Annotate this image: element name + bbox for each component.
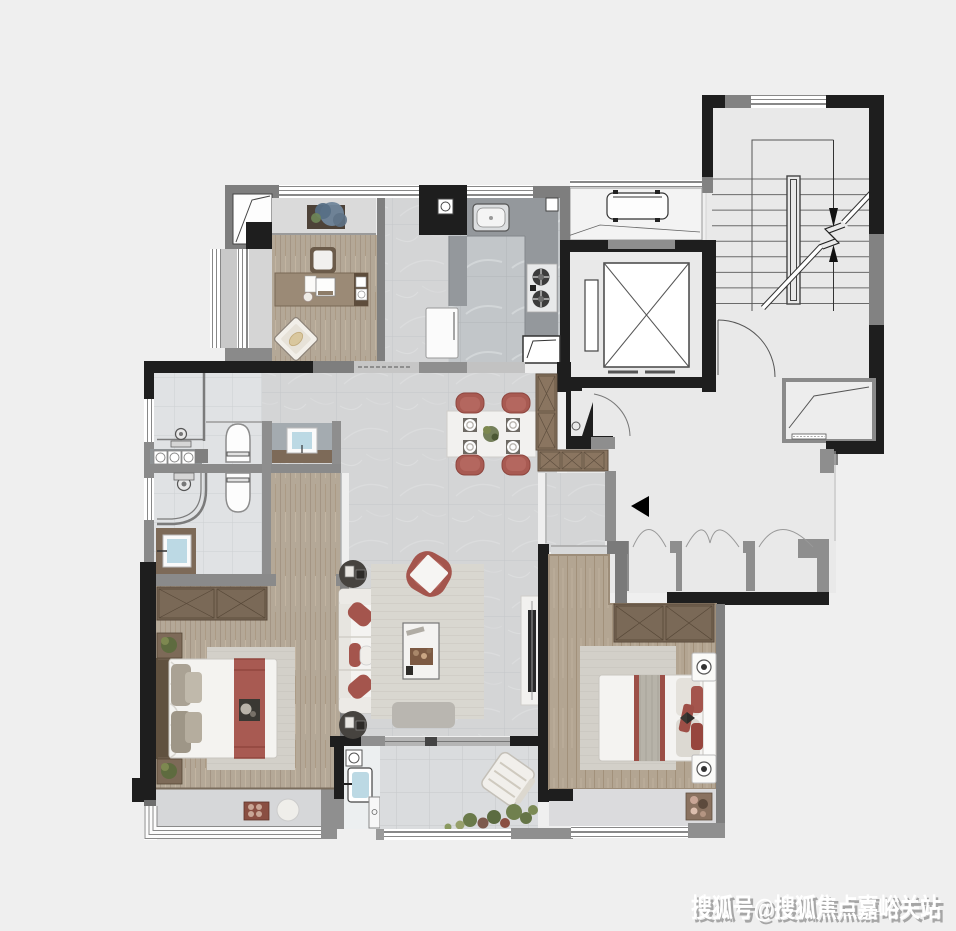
svg-text:搜狐号@搜狐焦点嘉峪关站: 搜狐号@搜狐焦点嘉峪关站: [691, 893, 941, 923]
